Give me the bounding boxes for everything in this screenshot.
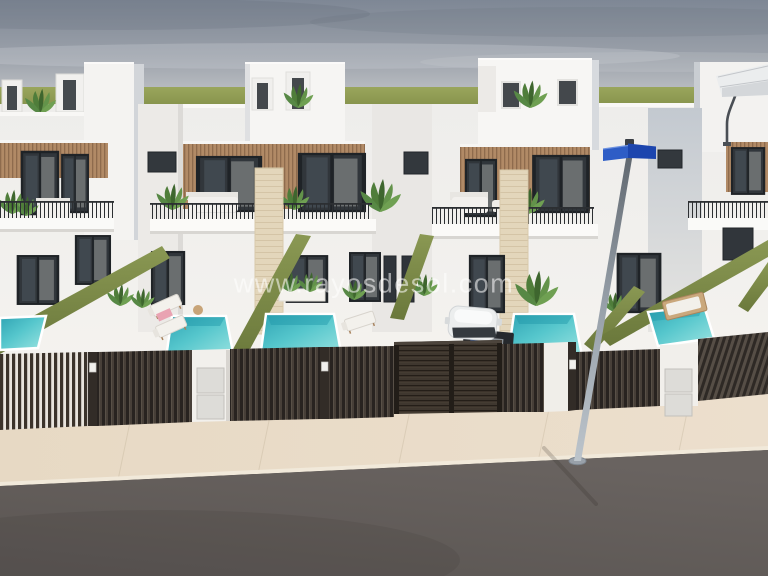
terrace-window	[732, 148, 764, 194]
side-table	[193, 305, 203, 315]
access-door	[63, 80, 76, 110]
pillar-shade	[226, 350, 230, 421]
utility-box	[665, 369, 692, 392]
ground-glass-door	[470, 256, 504, 312]
terrace-glass-door	[300, 154, 364, 211]
scene-canvas	[0, 0, 768, 576]
number-plaque	[90, 363, 97, 372]
balcony-slab	[0, 218, 114, 230]
ledge	[183, 141, 365, 144]
driveway-gate	[394, 340, 502, 414]
render-image: www.rayosdesol.com	[0, 0, 768, 576]
access-door	[7, 86, 17, 110]
utility-box	[665, 394, 692, 416]
entrance-pillar	[544, 342, 568, 412]
gate-frame	[394, 342, 399, 414]
ground-window	[76, 236, 110, 284]
mirror	[497, 318, 503, 325]
fence-post	[568, 342, 576, 411]
louvered-fence	[0, 352, 88, 430]
ground-window	[18, 256, 58, 304]
roof-parapet	[588, 103, 704, 107]
gate-frame	[497, 340, 502, 412]
access-door	[257, 83, 268, 109]
white-planter	[279, 289, 325, 301]
small-window	[658, 150, 682, 168]
roof-parapet	[0, 112, 86, 116]
railing-top	[0, 201, 114, 203]
umbrella-foot	[723, 142, 731, 146]
utility-box	[197, 395, 224, 419]
shaded-face	[592, 60, 599, 150]
balcony-railing	[0, 202, 114, 219]
number-plaque	[322, 362, 329, 371]
slit-window	[384, 256, 396, 302]
diagonal-slat-fence	[698, 332, 768, 401]
roof-edge	[478, 58, 592, 60]
ledge	[0, 140, 108, 143]
utility-box	[197, 368, 224, 393]
access-door	[558, 80, 577, 105]
mirror	[445, 317, 451, 324]
ledge	[460, 144, 590, 147]
slatted-fence	[329, 346, 394, 419]
roof-edge	[84, 62, 134, 64]
roof-parapet	[478, 66, 496, 112]
gate-frame	[449, 341, 454, 413]
slatted-fence	[230, 347, 320, 421]
pool	[0, 316, 46, 350]
railing-top	[688, 201, 768, 203]
slatted-fence	[97, 350, 192, 426]
roof-edge	[245, 62, 345, 64]
shaded-face	[245, 62, 250, 148]
number-plaque	[570, 360, 577, 369]
small-window	[148, 152, 176, 172]
slab-shadow	[0, 229, 114, 232]
fence-post	[320, 347, 329, 419]
slatted-fence	[502, 343, 544, 412]
small-window	[404, 152, 428, 174]
balcony-railing	[688, 202, 768, 219]
